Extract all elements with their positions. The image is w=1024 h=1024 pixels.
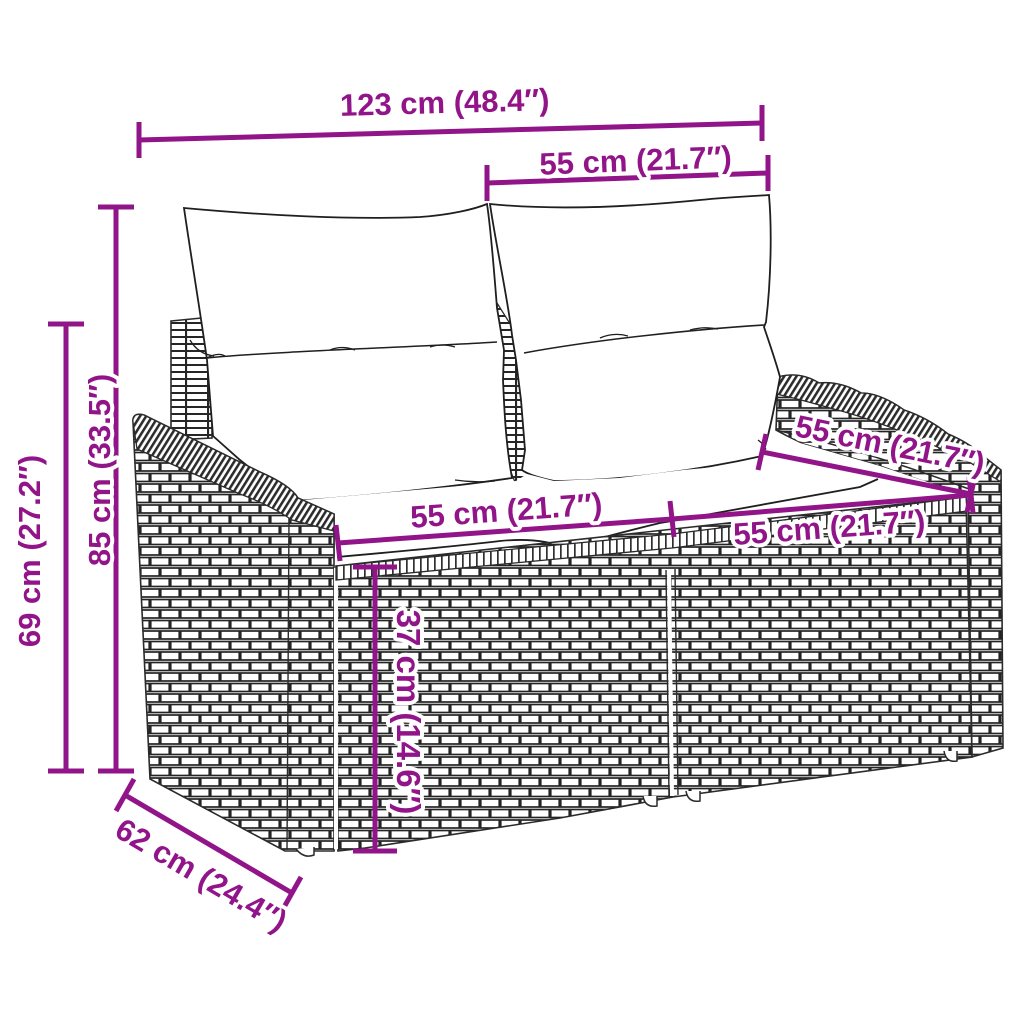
svg-text:55 cm (21.7″): 55 cm (21.7″) — [539, 139, 733, 181]
svg-text:85 cm (33.5″): 85 cm (33.5″) — [82, 374, 117, 566]
svg-text:123 cm (48.4″): 123 cm (48.4″) — [339, 82, 549, 123]
svg-text:69 cm (27.2″): 69 cm (27.2″) — [12, 455, 47, 647]
svg-text:37 cm (14.6″): 37 cm (14.6″) — [390, 610, 427, 815]
